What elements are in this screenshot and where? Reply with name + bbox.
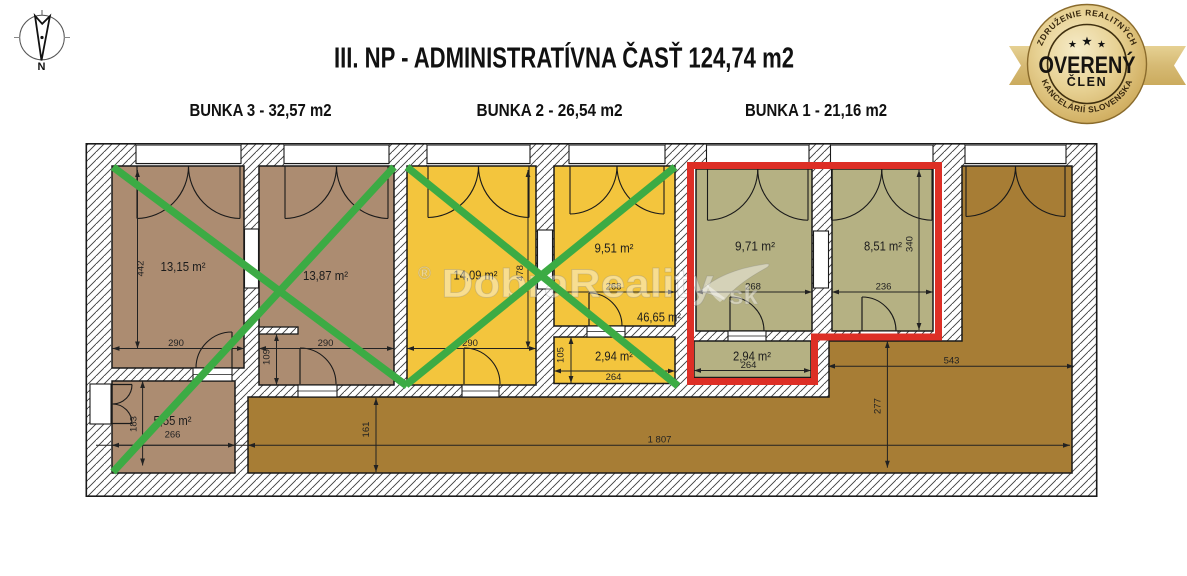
svg-text:264: 264: [606, 372, 622, 383]
svg-text:13,87 m²: 13,87 m²: [303, 268, 349, 283]
svg-text:★: ★: [1068, 40, 1077, 51]
svg-text:2,94 m²: 2,94 m²: [733, 349, 772, 364]
svg-text:105: 105: [556, 347, 567, 363]
svg-text:9,71 m²: 9,71 m²: [735, 239, 776, 254]
svg-text:13,15 m²: 13,15 m²: [161, 259, 207, 274]
svg-text:543: 543: [944, 356, 960, 367]
svg-text:161: 161: [361, 422, 372, 438]
svg-text:★: ★: [1097, 40, 1106, 51]
svg-text:N: N: [38, 61, 46, 73]
svg-text:DobraReality: DobraReality: [442, 262, 715, 306]
svg-text:290: 290: [318, 338, 334, 349]
svg-text:1 807: 1 807: [648, 435, 672, 446]
svg-text:442: 442: [136, 261, 147, 277]
svg-text:ČLEN: ČLEN: [1067, 74, 1107, 89]
svg-text:183: 183: [129, 416, 140, 432]
svg-text:9,51 m²: 9,51 m²: [595, 241, 635, 256]
svg-text:BUNKA 2 - 26,54 m2: BUNKA 2 - 26,54 m2: [477, 100, 623, 120]
svg-text:8,51 m²: 8,51 m²: [864, 239, 903, 254]
svg-text:46,65 m²: 46,65 m²: [637, 310, 682, 325]
svg-text:®: ®: [418, 263, 431, 283]
svg-text:sk: sk: [729, 280, 758, 310]
svg-text:2,94 m²: 2,94 m²: [595, 349, 634, 364]
svg-text:III. NP - ADMINISTRATÍVNA ČASŤ: III. NP - ADMINISTRATÍVNA ČASŤ 124,74 m2: [334, 41, 794, 75]
svg-text:109: 109: [262, 349, 273, 365]
svg-text:340: 340: [905, 236, 916, 252]
svg-text:290: 290: [168, 338, 184, 349]
svg-text:236: 236: [876, 282, 892, 293]
svg-text:★: ★: [1081, 35, 1092, 49]
svg-text:BUNKA 1 - 21,16 m2: BUNKA 1 - 21,16 m2: [745, 100, 887, 120]
svg-text:266: 266: [165, 430, 181, 441]
svg-text:BUNKA 3 - 32,57 m2: BUNKA 3 - 32,57 m2: [190, 100, 332, 120]
svg-text:277: 277: [873, 398, 884, 414]
